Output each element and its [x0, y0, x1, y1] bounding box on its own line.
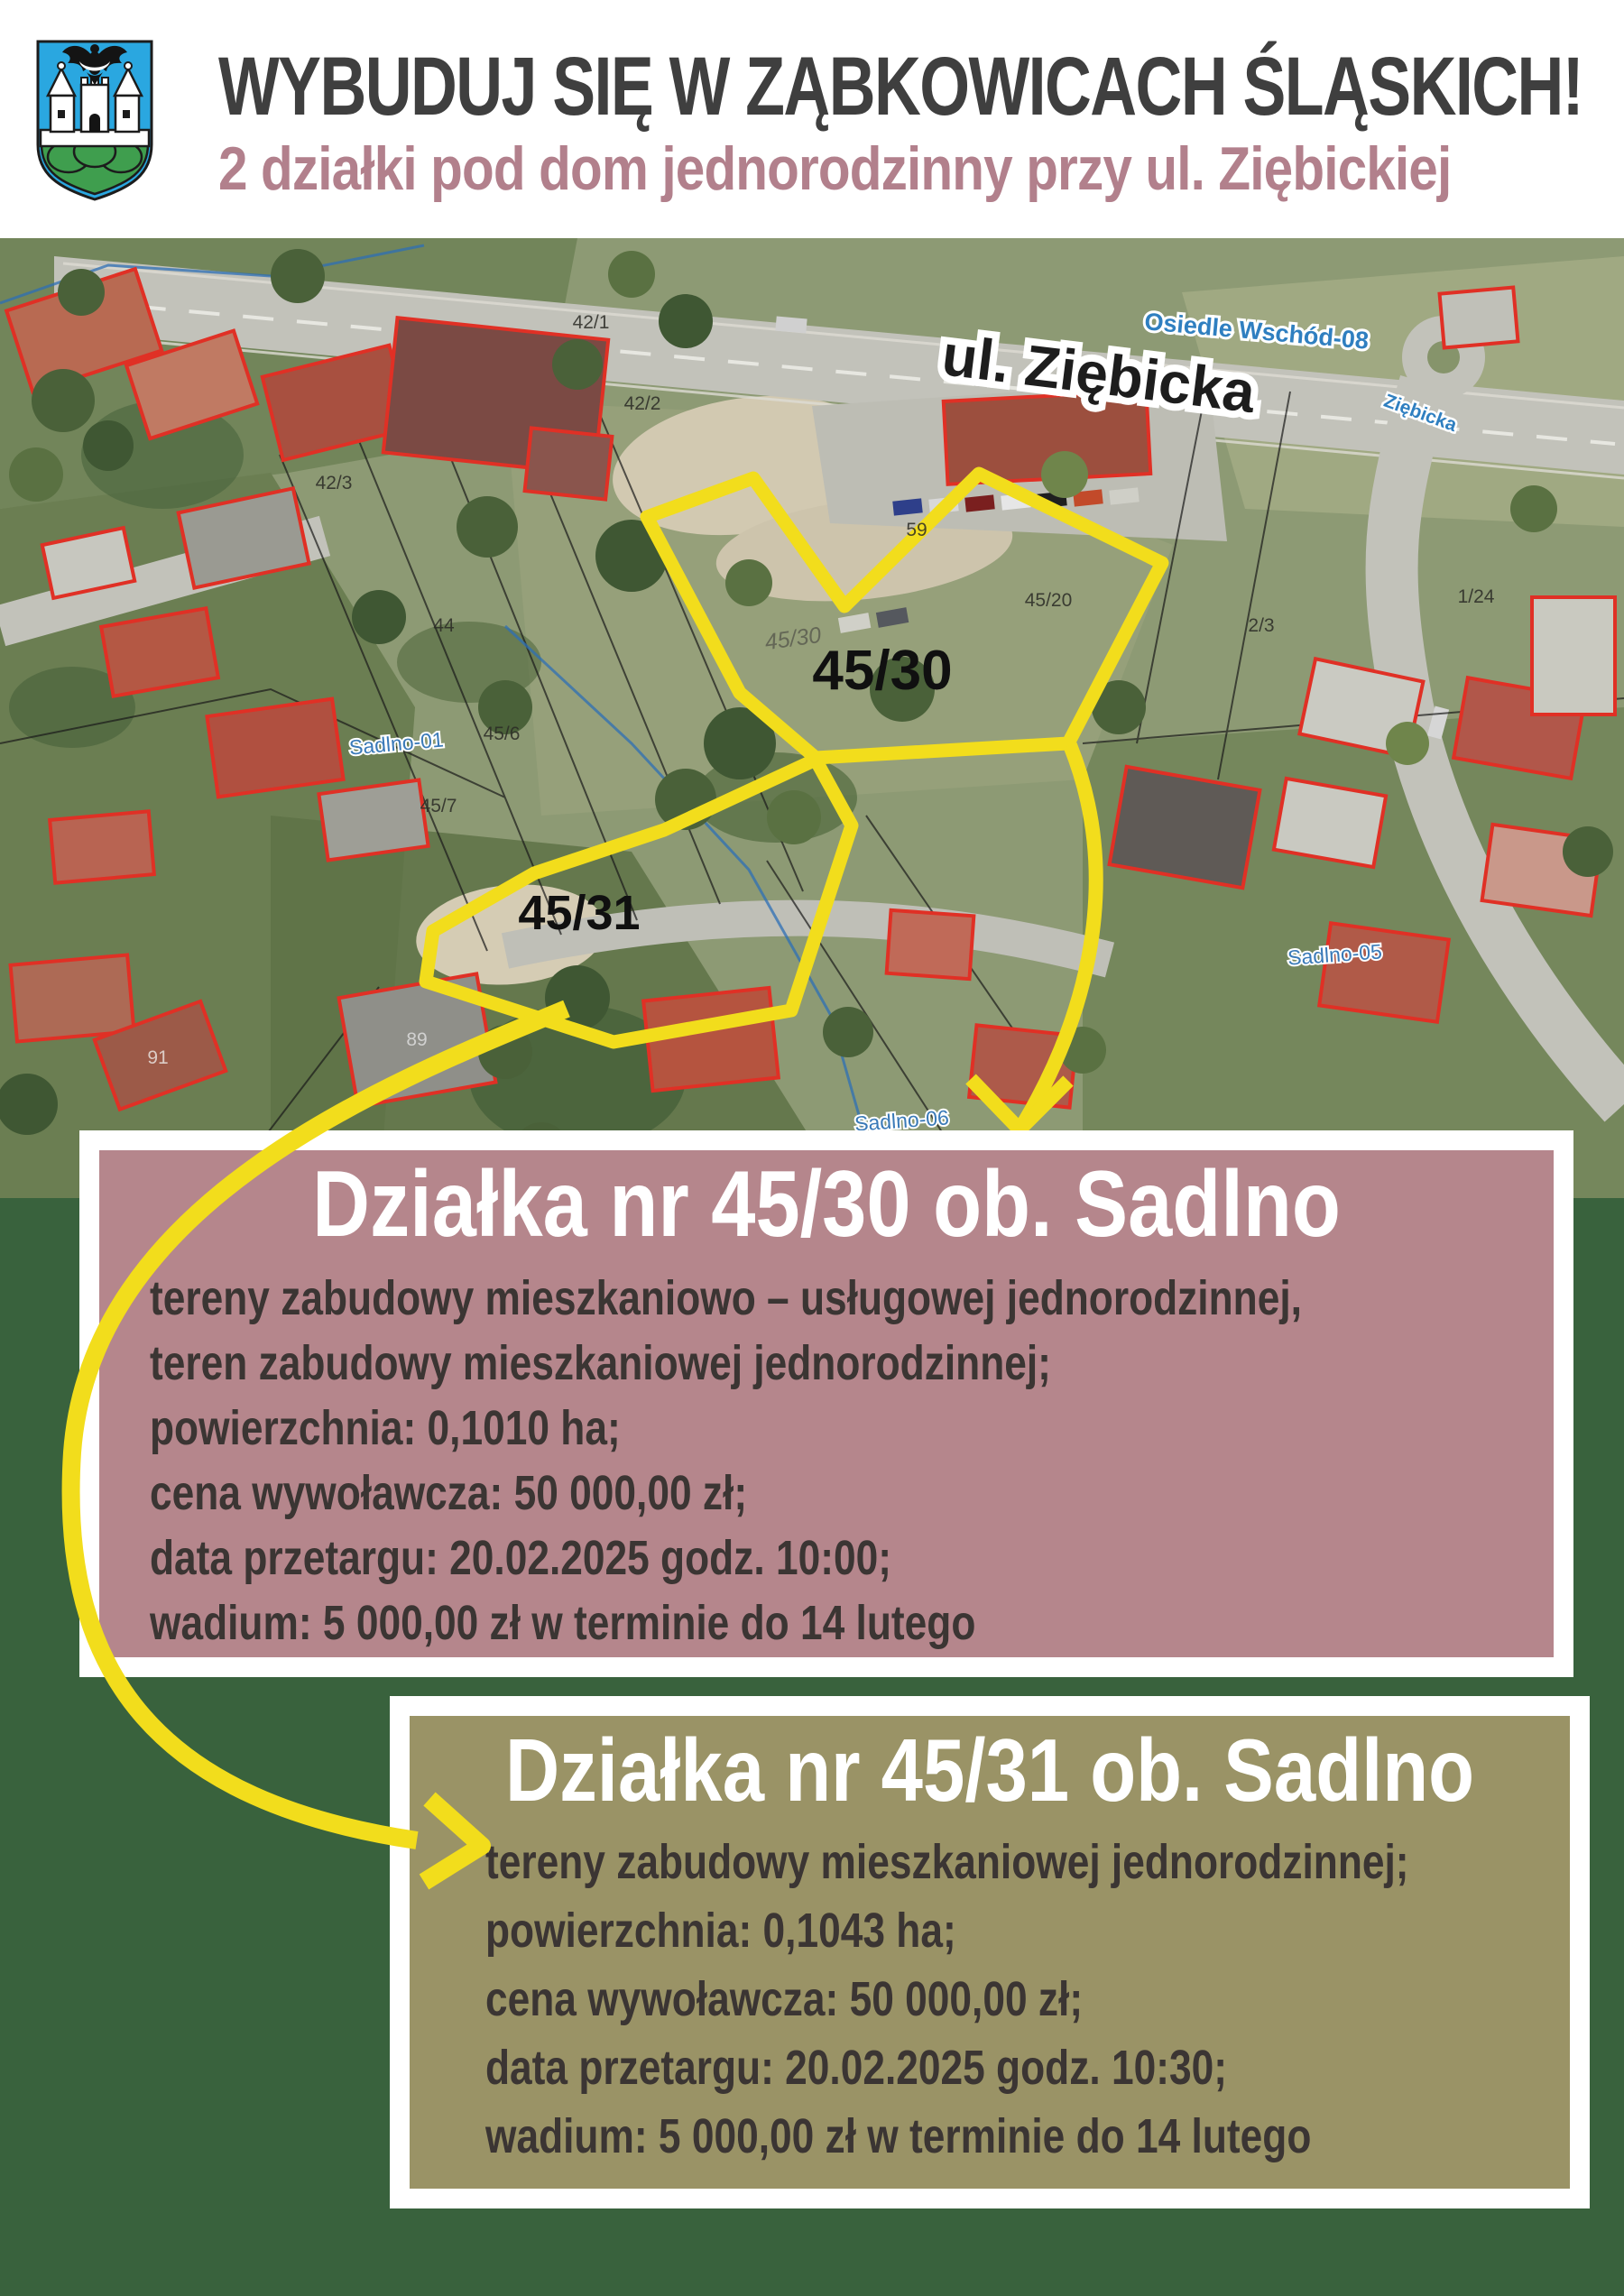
detail-line: tereny zabudowy mieszkaniowo – usługowej… — [150, 1266, 1301, 1331]
plot-4530-info-box: Działka nr 45/30 ob. Sadlno tereny zabud… — [79, 1130, 1573, 1677]
detail-line: wadium: 5 000,00 zł w terminie do 14 lut… — [150, 1591, 1301, 1655]
svg-text:42/2: 42/2 — [624, 393, 661, 414]
svg-text:59: 59 — [906, 520, 927, 540]
detail-line: cena wywoławcza: 50 000,00 zł; — [150, 1461, 1301, 1526]
plot-label-4530: 45/30 — [812, 640, 952, 702]
plot-label-4531: 45/31 — [518, 886, 640, 940]
detail-line: data przetargu: 20.02.2025 godz. 10:30; — [485, 2033, 1375, 2102]
page-title: WYBUDUJ SIĘ W ZĄBKOWICACH ŚLĄSKICH! — [218, 40, 1582, 134]
detail-line: powierzchnia: 0,1043 ha; — [485, 1896, 1375, 1965]
page-subtitle: 2 działki pod dom jednorodzinny przy ul.… — [218, 134, 1451, 204]
svg-text:2/3: 2/3 — [1248, 615, 1274, 636]
detail-line: powierzchnia: 0,1010 ha; — [150, 1396, 1301, 1461]
detail-line: wadium: 5 000,00 zł w terminie do 14 lut… — [485, 2102, 1375, 2171]
svg-text:91: 91 — [147, 1047, 168, 1068]
zabkowice-coat-of-arms-icon — [32, 36, 157, 206]
plot-4531-info-box: Działka nr 45/31 ob. Sadlno tereny zabud… — [390, 1696, 1590, 2208]
aerial-map: Osiedle Wschód-08 ul. Ziębicka Ziębicka … — [0, 238, 1624, 1200]
svg-text:45/7: 45/7 — [420, 796, 457, 816]
aerial-map-image: Osiedle Wschód-08 ul. Ziębicka Ziębicka … — [0, 238, 1624, 1200]
svg-text:45/20: 45/20 — [1025, 590, 1073, 611]
svg-text:45/6: 45/6 — [484, 724, 521, 744]
svg-text:42/3: 42/3 — [316, 473, 353, 493]
plot-4531-box-title: Działka nr 45/31 ob. Sadlno — [496, 1721, 1482, 1819]
detail-line: cena wywoławcza: 50 000,00 zł; — [485, 1965, 1375, 2033]
svg-text:1/24: 1/24 — [1458, 586, 1495, 607]
detail-line: tereny zabudowy mieszkaniowej jednorodzi… — [485, 1828, 1375, 1896]
svg-text:44: 44 — [433, 615, 455, 636]
detail-line: data przetargu: 20.02.2025 godz. 10:00; — [150, 1526, 1301, 1591]
svg-text:42/1: 42/1 — [573, 312, 610, 333]
plot-4530-box-title: Działka nr 45/30 ob. Sadlno — [208, 1154, 1444, 1255]
plot-4531-box-details: tereny zabudowy mieszkaniowej jednorodzi… — [485, 1828, 1375, 2171]
plot-4530-box-details: tereny zabudowy mieszkaniowo – usługowej… — [150, 1266, 1301, 1655]
header: WYBUDUJ SIĘ W ZĄBKOWICACH ŚLĄSKICH! 2 dz… — [0, 0, 1624, 238]
svg-text:89: 89 — [406, 1029, 427, 1050]
flyer-page: WYBUDUJ SIĘ W ZĄBKOWICACH ŚLĄSKICH! 2 dz… — [0, 0, 1624, 2296]
detail-line: teren zabudowy mieszkaniowej jednorodzin… — [150, 1331, 1301, 1396]
